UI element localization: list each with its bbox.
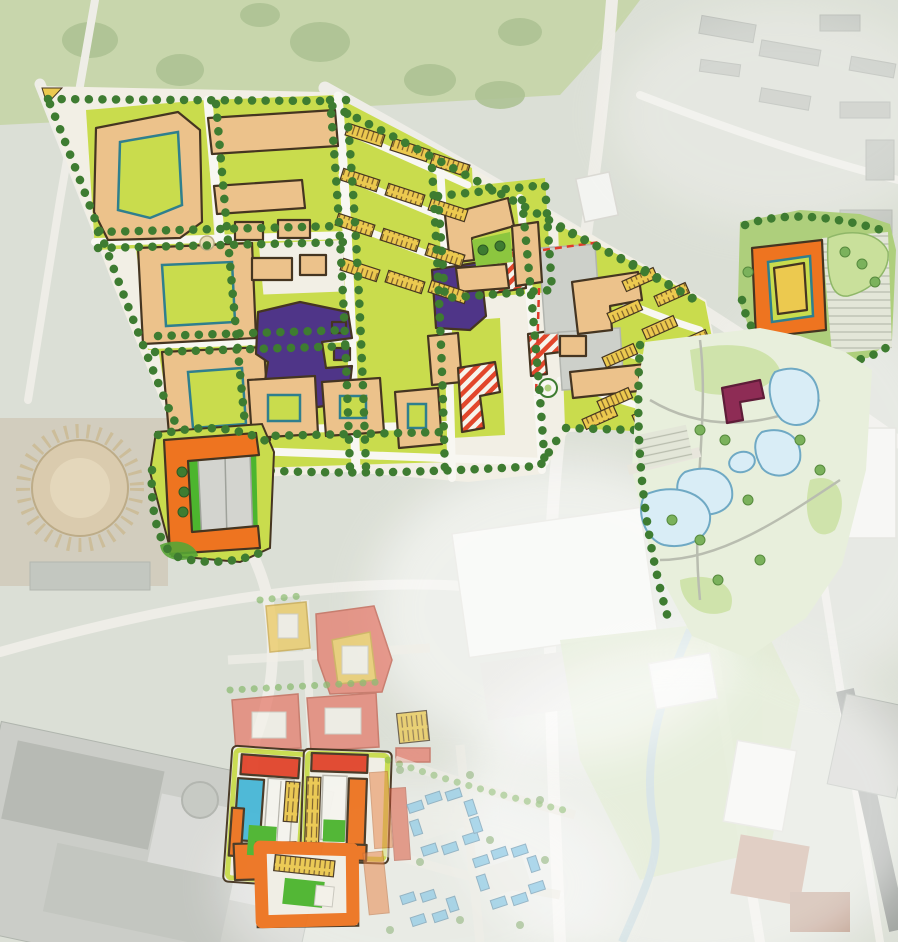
yellow-inner-building (774, 263, 807, 314)
map-canvas (0, 0, 898, 942)
pond-2 (755, 430, 800, 475)
midleft-block (150, 424, 274, 562)
red-bar-building (240, 754, 299, 778)
bar-building-1 (208, 110, 338, 154)
south-block-3 (248, 835, 367, 938)
masterplan-aerial-map (0, 0, 898, 942)
